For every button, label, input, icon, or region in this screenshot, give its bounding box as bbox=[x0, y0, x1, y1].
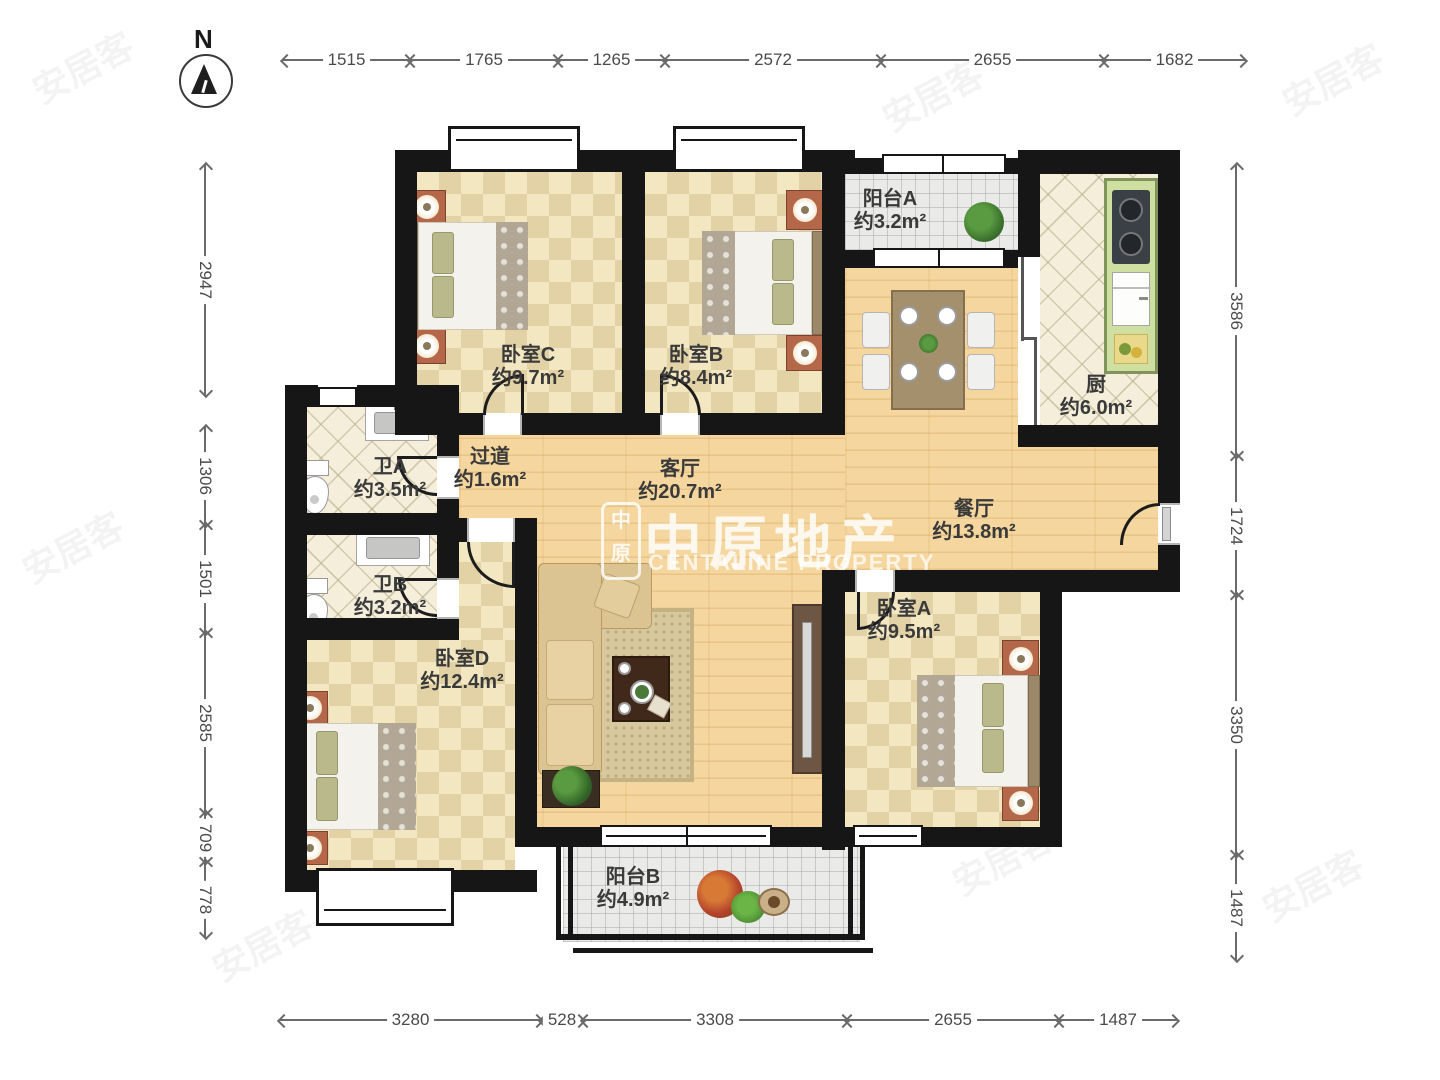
entry-door-leaf bbox=[1162, 507, 1171, 541]
dim-value: 778 bbox=[195, 880, 215, 918]
window-tick bbox=[942, 156, 944, 172]
dining-table bbox=[891, 290, 965, 410]
dining-chair bbox=[967, 312, 995, 348]
bed-throw bbox=[702, 231, 735, 335]
dim-value: 3586 bbox=[1226, 287, 1246, 335]
window bbox=[853, 825, 923, 847]
bay-window bbox=[448, 126, 580, 172]
room-label-bedroom-c: 卧室C 约9.7m² bbox=[492, 344, 564, 390]
railing bbox=[573, 948, 873, 953]
window-line bbox=[859, 835, 917, 837]
railing bbox=[556, 845, 561, 937]
wall-segment bbox=[515, 518, 537, 832]
pillow bbox=[982, 683, 1004, 727]
dim-left-6: 778 bbox=[204, 862, 206, 937]
dim-top-6: 1682 bbox=[1104, 59, 1245, 61]
room-label-kitchen: 厨 约6.0m² bbox=[1060, 374, 1132, 420]
room-area: 约20.7m² bbox=[638, 481, 721, 504]
door-gap bbox=[660, 413, 700, 435]
room-area: 约9.7m² bbox=[492, 367, 564, 390]
faint-watermark: 安居客 bbox=[1252, 836, 1372, 933]
bay-window bbox=[673, 126, 805, 172]
dim-value: 3308 bbox=[691, 1010, 739, 1030]
dim-top-2: 1765 bbox=[410, 59, 558, 61]
room-area: 约3.2m² bbox=[354, 597, 426, 620]
cutting-board bbox=[1114, 334, 1148, 364]
dim-value: 2947 bbox=[195, 256, 215, 304]
dim-bottom-4: 2655 bbox=[847, 1019, 1059, 1021]
window-line bbox=[324, 909, 446, 911]
railing bbox=[568, 845, 573, 937]
brand-seal-icon: 中 原 bbox=[601, 502, 641, 580]
lamp-icon bbox=[1009, 791, 1033, 815]
window bbox=[600, 825, 772, 847]
nightstand bbox=[786, 335, 823, 371]
dim-value: 3280 bbox=[387, 1010, 435, 1030]
cup bbox=[618, 662, 631, 675]
dim-value: 2655 bbox=[969, 50, 1017, 70]
nightstand bbox=[786, 190, 823, 230]
burner-icon bbox=[1119, 232, 1143, 256]
dim-value: 3350 bbox=[1226, 701, 1246, 749]
room-area: 约8.4m² bbox=[660, 367, 732, 390]
room-label-hallway: 过道 约1.6m² bbox=[454, 446, 526, 492]
basket-center bbox=[768, 896, 780, 908]
dim-value: 1515 bbox=[323, 50, 371, 70]
window-line bbox=[681, 139, 797, 141]
tv-icon bbox=[802, 622, 812, 758]
dim-top-5: 2655 bbox=[881, 59, 1104, 61]
wall-segment bbox=[522, 413, 645, 435]
wall-segment bbox=[622, 150, 645, 435]
dim-value: 1487 bbox=[1094, 1010, 1142, 1030]
door-gap bbox=[483, 413, 522, 435]
stove-icon bbox=[1112, 190, 1150, 264]
pillow bbox=[432, 232, 454, 274]
dim-left-4: 2585 bbox=[204, 633, 206, 813]
wall-segment bbox=[822, 827, 855, 847]
room-name: 阳台B bbox=[597, 866, 669, 889]
plate bbox=[937, 362, 957, 382]
bed-throw bbox=[496, 222, 528, 330]
plate bbox=[899, 362, 919, 382]
dining-chair bbox=[862, 312, 890, 348]
pillow bbox=[772, 283, 794, 325]
sofa-cushion bbox=[546, 704, 594, 766]
wall-segment bbox=[923, 827, 1062, 847]
sliding-door-leaf bbox=[1034, 337, 1037, 425]
room-name: 卫B bbox=[354, 574, 426, 597]
dim-left-1: 2947 bbox=[204, 165, 206, 395]
room-name: 卧室A bbox=[868, 598, 940, 621]
room-area: 约13.8m² bbox=[932, 521, 1015, 544]
dim-top-3: 1265 bbox=[558, 59, 665, 61]
sliding-door-leaf bbox=[1021, 257, 1024, 341]
dim-value: 2585 bbox=[195, 699, 215, 747]
lamp-icon bbox=[415, 334, 439, 358]
nightstand bbox=[1002, 785, 1039, 821]
room-area: 约3.5m² bbox=[354, 479, 426, 502]
dim-bottom-5: 1487 bbox=[1059, 1019, 1177, 1021]
fruit-icon bbox=[1131, 347, 1142, 358]
bay-window bbox=[316, 868, 454, 926]
room-name: 阳台A bbox=[854, 188, 926, 211]
dim-bottom-2: 528 bbox=[541, 1019, 583, 1021]
dim-left-2: 1306 bbox=[204, 427, 206, 525]
wall-segment bbox=[1018, 150, 1040, 257]
room-area: 约3.2m² bbox=[854, 211, 926, 234]
dim-right-1: 3586 bbox=[1235, 165, 1237, 456]
balcony-plant-icon bbox=[964, 202, 1004, 242]
dim-value: 2572 bbox=[749, 50, 797, 70]
dim-value: 1306 bbox=[195, 452, 215, 500]
room-area: 约1.6m² bbox=[454, 469, 526, 492]
dining-chair bbox=[862, 354, 890, 390]
wall-segment bbox=[1040, 592, 1062, 847]
wall-segment bbox=[1158, 150, 1180, 507]
wall-segment bbox=[357, 385, 417, 407]
room-label-bedroom-a: 卧室A 约9.5m² bbox=[868, 598, 940, 644]
faint-watermark: 安居客 bbox=[1272, 30, 1392, 127]
room-name: 客厅 bbox=[638, 458, 721, 481]
dim-left-3: 1501 bbox=[204, 525, 206, 633]
wall-segment bbox=[285, 870, 320, 892]
burner-icon bbox=[1119, 198, 1143, 222]
wall-segment bbox=[285, 618, 459, 640]
dim-value: 1724 bbox=[1226, 502, 1246, 550]
room-name: 卫A bbox=[354, 456, 426, 479]
bed-throw bbox=[917, 675, 955, 787]
lamp-icon bbox=[793, 198, 817, 222]
dim-right-2: 1724 bbox=[1235, 456, 1237, 595]
dim-bottom-3: 3308 bbox=[583, 1019, 847, 1021]
door-gap bbox=[467, 518, 515, 542]
room-name: 卧室D bbox=[420, 648, 503, 671]
room-label-bedroom-b: 卧室B 约8.4m² bbox=[660, 344, 732, 390]
room-label-bath-a: 卫A 约3.5m² bbox=[354, 456, 426, 502]
dim-value: 1265 bbox=[588, 50, 636, 70]
dim-value: 1682 bbox=[1151, 50, 1199, 70]
wall-segment bbox=[417, 385, 437, 435]
sink-icon bbox=[1112, 272, 1150, 326]
room-area: 约4.9m² bbox=[597, 889, 669, 912]
pillow bbox=[432, 276, 454, 318]
dim-left-5: 709 bbox=[204, 813, 206, 862]
railing bbox=[556, 934, 865, 940]
plant-icon bbox=[552, 766, 592, 806]
faint-watermark: 安居客 bbox=[22, 18, 142, 115]
dim-bottom-1: 3280 bbox=[280, 1019, 541, 1021]
basket-icon bbox=[758, 888, 790, 916]
brand-watermark-en: CENTALINE PROPERTY bbox=[648, 550, 935, 576]
tv-cabinet bbox=[792, 604, 823, 774]
dim-value: 709 bbox=[195, 818, 215, 856]
faucet-icon bbox=[1139, 297, 1148, 300]
dim-value: 1765 bbox=[460, 50, 508, 70]
dim-right-3: 3350 bbox=[1235, 595, 1237, 855]
room-name: 厨 bbox=[1060, 374, 1132, 397]
wall-segment bbox=[450, 870, 537, 892]
north-label: N bbox=[194, 24, 213, 55]
wall-segment bbox=[285, 513, 459, 535]
wall-segment bbox=[645, 413, 660, 435]
dim-value: 528 bbox=[543, 1010, 581, 1030]
brand-seal-char: 原 bbox=[604, 538, 638, 571]
bed-throw bbox=[378, 723, 416, 830]
room-name: 餐厅 bbox=[932, 498, 1015, 521]
room-area: 约9.5m² bbox=[868, 621, 940, 644]
lamp-icon bbox=[793, 341, 817, 365]
room-area: 约6.0m² bbox=[1060, 397, 1132, 420]
wall-segment bbox=[437, 518, 467, 542]
plate bbox=[937, 306, 957, 326]
floorplan-page: 安居客 安居客 安居客 安居客 安居客 安居客 安居客 安居客 安居客 N bbox=[0, 0, 1440, 1080]
wall-segment bbox=[700, 413, 822, 435]
pillow bbox=[316, 731, 338, 775]
toilet-drain bbox=[310, 495, 319, 504]
brand-seal-char: 中 bbox=[604, 505, 638, 538]
railing bbox=[860, 845, 865, 937]
wall-segment bbox=[1018, 150, 1180, 174]
room-label-living: 客厅 约20.7m² bbox=[638, 458, 721, 504]
room-label-bedroom-d: 卧室D 约12.4m² bbox=[420, 648, 503, 694]
lamp-icon bbox=[1009, 647, 1033, 671]
coffee-table bbox=[612, 656, 670, 722]
wall-segment bbox=[1005, 250, 1018, 268]
room-label-bath-b: 卫B 约3.2m² bbox=[354, 574, 426, 620]
wall-segment bbox=[1018, 425, 1180, 447]
dim-top-1: 1515 bbox=[283, 59, 410, 61]
plate bbox=[899, 306, 919, 326]
room-label-balcony-b: 阳台B 约4.9m² bbox=[597, 866, 669, 912]
room-label-balcony-a: 阳台A 约3.2m² bbox=[854, 188, 926, 234]
sink-divider bbox=[1113, 287, 1151, 289]
railing bbox=[848, 845, 853, 937]
wall-segment bbox=[437, 617, 459, 640]
nightstand bbox=[1002, 640, 1039, 678]
cup bbox=[618, 702, 631, 715]
wall-segment bbox=[822, 150, 845, 435]
dining-chair bbox=[967, 354, 995, 390]
centerpiece-plant-icon bbox=[919, 334, 938, 353]
faint-watermark: 安居客 bbox=[12, 498, 132, 595]
window-line bbox=[456, 139, 572, 141]
room-area: 约12.4m² bbox=[420, 671, 503, 694]
basin-icon bbox=[366, 537, 420, 559]
room-label-dining: 餐厅 约13.8m² bbox=[932, 498, 1015, 544]
dim-value: 2655 bbox=[929, 1010, 977, 1030]
table-plant-icon bbox=[635, 685, 649, 699]
dim-right-4: 1487 bbox=[1235, 855, 1237, 960]
pillow bbox=[772, 239, 794, 281]
window-tick bbox=[938, 250, 940, 266]
wall-segment bbox=[822, 570, 845, 850]
sofa-cushion bbox=[546, 640, 594, 700]
pillow bbox=[982, 729, 1004, 773]
faint-watermark: 安居客 bbox=[202, 896, 322, 993]
dim-top-4: 2572 bbox=[665, 59, 881, 61]
kitchen-counter bbox=[1104, 178, 1158, 374]
room-name: 卧室B bbox=[660, 344, 732, 367]
room-name: 卧室C bbox=[492, 344, 564, 367]
bed-headboard bbox=[1028, 675, 1040, 787]
window-line bbox=[606, 835, 766, 837]
wall-segment bbox=[845, 250, 873, 268]
wall-segment bbox=[515, 827, 600, 847]
wall-segment bbox=[895, 570, 1180, 592]
lamp-icon bbox=[415, 195, 439, 219]
window bbox=[318, 387, 357, 407]
sliding-door-track bbox=[1021, 337, 1037, 340]
room-name: 过道 bbox=[454, 446, 526, 469]
pillow bbox=[316, 777, 338, 821]
fruit-icon bbox=[1119, 343, 1131, 355]
window bbox=[873, 248, 1005, 268]
window bbox=[882, 154, 1006, 174]
dim-value: 1501 bbox=[195, 555, 215, 603]
dim-value: 1487 bbox=[1226, 884, 1246, 932]
door-gap bbox=[437, 578, 459, 619]
